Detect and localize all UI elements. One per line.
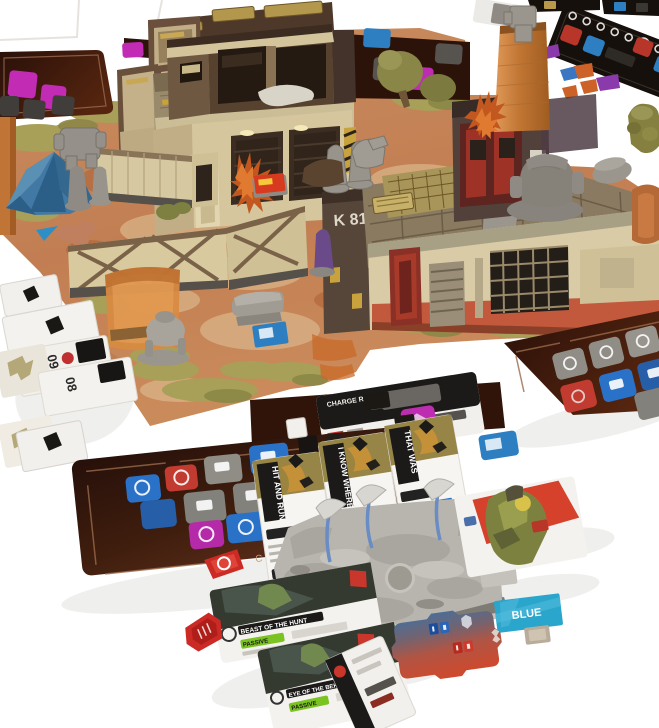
svg-text:K 81: K 81	[333, 211, 368, 230]
svg-text:C: C	[255, 553, 263, 565]
